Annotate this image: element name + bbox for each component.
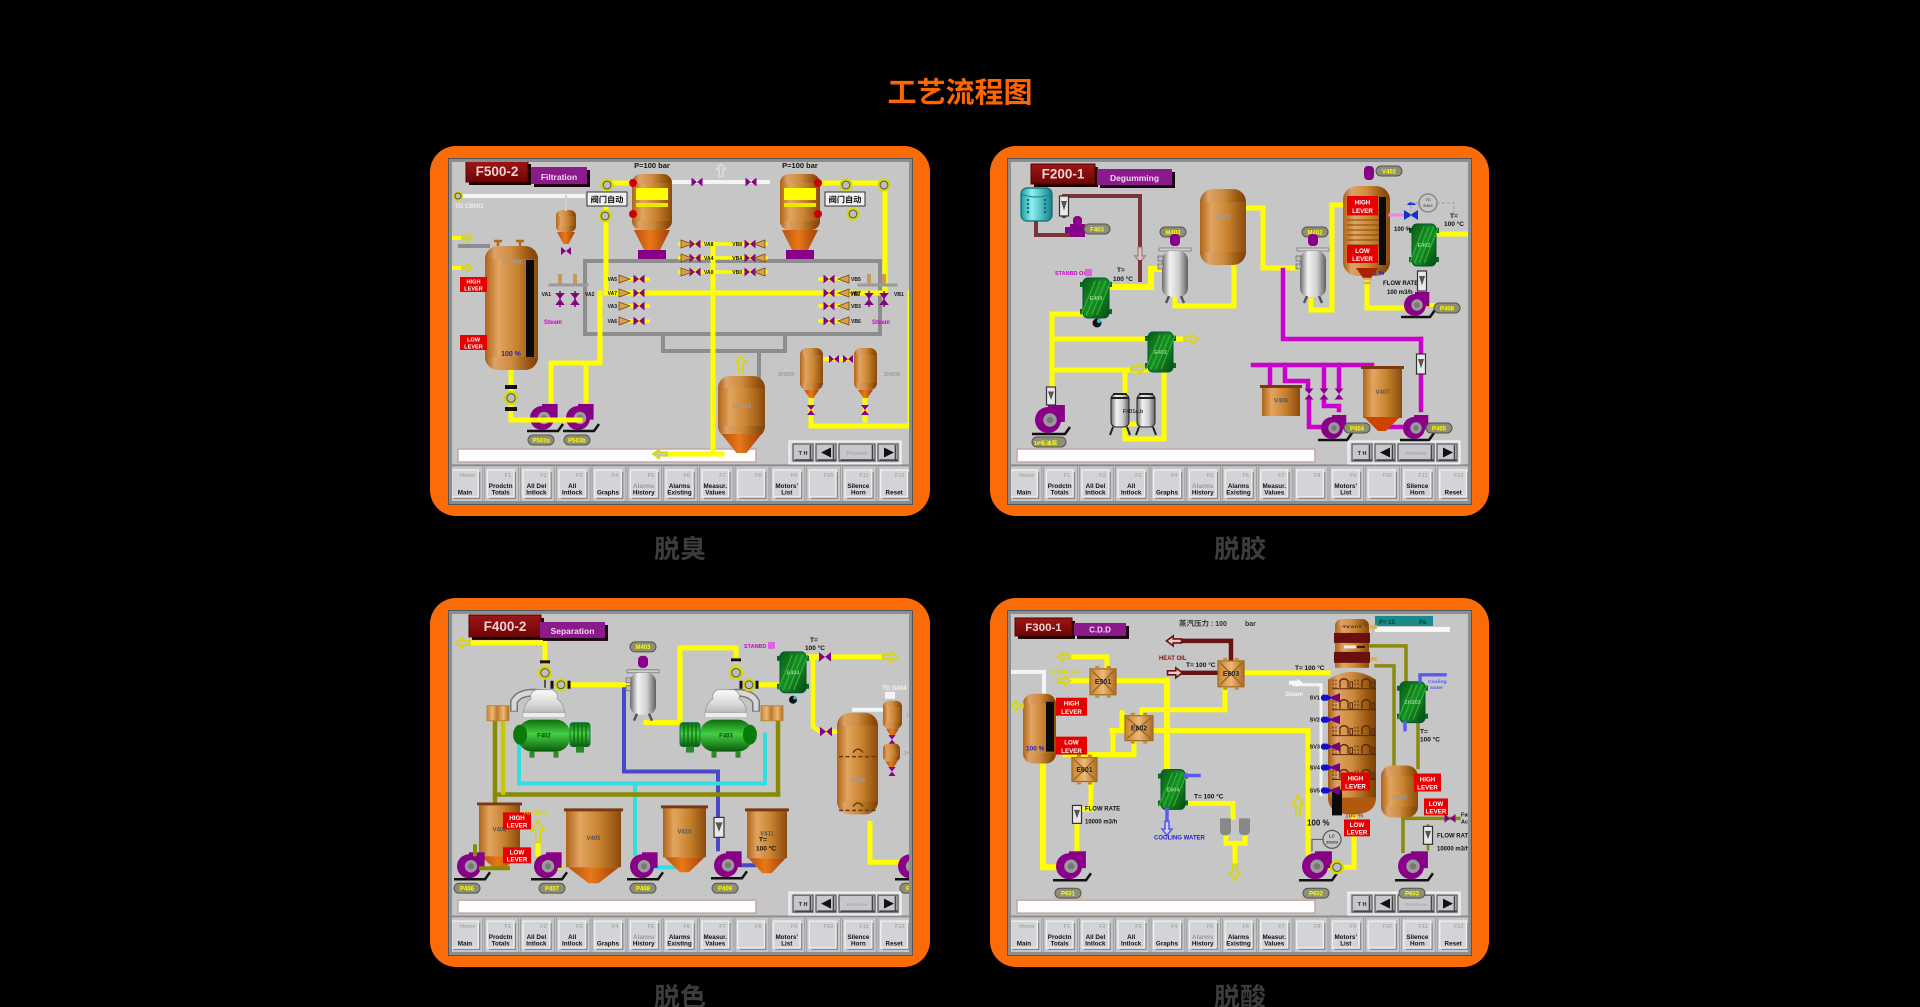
svg-text:F3: F3: [1135, 473, 1141, 479]
svg-text:1#: 1#: [1034, 441, 1040, 447]
svg-text:Pa: Pa: [1419, 620, 1427, 626]
svg-text:HIGH: HIGH: [1355, 199, 1371, 206]
svg-text:P=100 bar: P=100 bar: [634, 161, 670, 170]
svg-text:F10: F10: [823, 473, 832, 479]
svg-text:HIGH: HIGH: [467, 280, 481, 286]
svg-text:F200-1: F200-1: [1042, 166, 1085, 181]
svg-text:Intlock: Intlock: [526, 490, 547, 497]
svg-text:F6: F6: [1242, 473, 1248, 479]
svg-text:F12: F12: [895, 924, 904, 930]
svg-text:VA1: VA1: [542, 292, 552, 298]
svg-text:F3: F3: [576, 473, 582, 479]
svg-text:F12: F12: [1454, 924, 1463, 930]
svg-text:VB6: VB6: [851, 319, 861, 325]
svg-text:P409: P409: [718, 886, 733, 892]
svg-text:T=: T=: [810, 637, 818, 644]
svg-text:V405: V405: [586, 836, 601, 842]
svg-text:Home: Home: [1019, 473, 1034, 479]
svg-text:100 %: 100 %: [1394, 227, 1412, 233]
svg-text:E601: E601: [1076, 767, 1092, 774]
svg-text:F2: F2: [540, 924, 546, 930]
svg-text:Filtration: Filtration: [541, 172, 577, 182]
svg-text:ZH203: ZH203: [1404, 700, 1420, 706]
svg-text:LEVER: LEVER: [507, 857, 528, 864]
svg-text:VA5: VA5: [608, 277, 618, 283]
svg-text:E400: E400: [1090, 296, 1103, 302]
svg-text:Main: Main: [458, 941, 472, 948]
svg-text:ZH210: ZH210: [732, 403, 752, 410]
svg-text:LOW: LOW: [510, 849, 525, 856]
svg-text:VB3: VB3: [851, 304, 861, 310]
svg-text:Previous: Previous: [1405, 902, 1426, 908]
svg-text:History: History: [1192, 941, 1214, 948]
svg-text:E603: E603: [1223, 671, 1239, 678]
svg-text:F2: F2: [540, 473, 546, 479]
svg-text:TO CB001: TO CB001: [455, 204, 484, 210]
svg-text:F3: F3: [576, 924, 582, 930]
svg-text:T H: T H: [1358, 451, 1367, 457]
svg-text:F5: F5: [1207, 924, 1213, 930]
svg-text:P404: P404: [1350, 426, 1365, 432]
svg-text:LEVER: LEVER: [1352, 208, 1373, 215]
svg-text:VA7: VA7: [608, 291, 618, 297]
svg-text:E404: E404: [787, 670, 801, 676]
svg-text:T H: T H: [1358, 902, 1367, 908]
svg-text:VA8: VA8: [704, 242, 714, 248]
svg-text:LEVER: LEVER: [464, 345, 483, 351]
svg-text:F4: F4: [1171, 473, 1178, 479]
svg-text:V403: V403: [850, 778, 866, 785]
svg-text:F300-1: F300-1: [1025, 622, 1062, 634]
svg-text:F403: F403: [719, 734, 733, 740]
svg-text:Previous: Previous: [846, 451, 867, 457]
svg-text:F11: F11: [860, 924, 869, 930]
svg-text:E604: E604: [1167, 787, 1181, 793]
svg-text:C.D.D: C.D.D: [1089, 626, 1111, 635]
svg-text:F9: F9: [791, 473, 797, 479]
svg-text:F3: F3: [1135, 924, 1141, 930]
svg-text:Totals: Totals: [492, 941, 511, 948]
svg-text:F500-2: F500-2: [476, 164, 519, 179]
svg-text:F2: F2: [1099, 473, 1105, 479]
svg-text:T H: T H: [799, 451, 808, 457]
svg-text:Graphs: Graphs: [597, 490, 620, 497]
svg-text:P408: P408: [636, 886, 651, 892]
svg-text:Intlock: Intlock: [1085, 941, 1106, 948]
svg-text:COOLING WATER: COOLING WATER: [1154, 835, 1206, 841]
svg-text:HIGH: HIGH: [1420, 776, 1436, 783]
svg-text:F6: F6: [683, 924, 689, 930]
svg-text:Existing: Existing: [1226, 941, 1251, 948]
svg-text:T=: T=: [759, 836, 767, 843]
svg-text:Graphs: Graphs: [597, 941, 620, 948]
svg-text:Values: Values: [705, 941, 725, 948]
svg-text:E501: E501: [1095, 679, 1111, 686]
svg-text:F402: F402: [537, 734, 551, 740]
svg-text:E402: E402: [1423, 203, 1433, 208]
svg-text:LEVER: LEVER: [507, 823, 528, 830]
svg-text:VB4: VB4: [732, 256, 742, 262]
svg-text:Home: Home: [460, 924, 475, 930]
svg-text:SV2: SV2: [1310, 718, 1320, 724]
svg-text:LOW: LOW: [1429, 801, 1444, 808]
svg-text:V406: V406: [1274, 399, 1289, 405]
svg-text:F400-2: F400-2: [484, 619, 527, 634]
svg-text:100 %: 100 %: [501, 351, 522, 358]
svg-text:100 °C: 100 °C: [1444, 220, 1464, 228]
svg-text:F9: F9: [1350, 924, 1356, 930]
svg-text:E602: E602: [1131, 726, 1147, 733]
svg-text:P408: P408: [1440, 306, 1455, 312]
svg-text:ZH209: ZH209: [884, 372, 901, 378]
svg-text:Horn: Horn: [1410, 490, 1425, 497]
svg-text:Main: Main: [1017, 941, 1031, 948]
svg-text:SV5: SV5: [1310, 788, 1320, 794]
svg-text:F8: F8: [1314, 473, 1320, 479]
svg-text:F9: F9: [1350, 473, 1356, 479]
svg-text:ZH204: ZH204: [502, 259, 522, 266]
svg-text:F8: F8: [755, 473, 761, 479]
svg-text:F5: F5: [648, 473, 654, 479]
svg-text:E402: E402: [1154, 350, 1167, 356]
svg-text:LOW: LOW: [1064, 740, 1079, 747]
svg-text:VA0: VA0: [704, 270, 714, 276]
svg-text:F5: F5: [1207, 473, 1213, 479]
svg-text:LOW: LOW: [467, 338, 481, 344]
svg-text:: 100: : 100: [1211, 621, 1227, 628]
svg-text:VB0: VB0: [732, 270, 742, 276]
svg-text:100 °C: 100 °C: [1420, 736, 1440, 744]
svg-text:T= 100 °C: T= 100 °C: [1186, 661, 1216, 669]
svg-text:Intlock: Intlock: [1121, 941, 1142, 948]
svg-text:F11: F11: [1419, 473, 1428, 479]
svg-text:Reset: Reset: [886, 941, 904, 948]
svg-text:Main: Main: [1017, 490, 1031, 497]
svg-text:Horn: Horn: [1410, 941, 1425, 948]
svg-text:Totals: Totals: [1051, 490, 1070, 497]
svg-text:Totals: Totals: [1051, 941, 1070, 948]
svg-text:Intlock: Intlock: [1121, 490, 1142, 497]
svg-text:F8: F8: [755, 924, 761, 930]
svg-text:VB8: VB8: [732, 242, 742, 248]
svg-text:History: History: [633, 941, 655, 948]
svg-text:100 %: 100 %: [1307, 818, 1330, 827]
svg-text:100 °C: 100 °C: [1113, 275, 1133, 283]
svg-text:LEVER: LEVER: [1347, 830, 1368, 837]
svg-text:LEVER: LEVER: [1061, 748, 1082, 755]
svg-text:CRUDE OIL: CRUDE OIL: [1050, 669, 1081, 675]
svg-text:V407: V407: [1375, 390, 1390, 396]
svg-text:F10: F10: [1382, 473, 1391, 479]
svg-text:F8: F8: [1314, 924, 1320, 930]
svg-text:E402: E402: [1418, 243, 1431, 249]
svg-text:FLOW RATE: FLOW RATE: [1085, 806, 1120, 812]
svg-text:Graphs: Graphs: [1156, 490, 1179, 497]
svg-text:ZH209: ZH209: [778, 372, 795, 378]
svg-text:F11: F11: [1419, 924, 1428, 930]
svg-text:LEVER: LEVER: [464, 287, 483, 293]
svg-text:F1: F1: [1064, 924, 1070, 930]
svg-text:F4: F4: [1171, 924, 1178, 930]
svg-text:Values: Values: [1264, 941, 1284, 948]
svg-text:F2: F2: [1099, 924, 1105, 930]
svg-text:bar: bar: [1245, 621, 1256, 628]
svg-text:P602: P602: [1309, 891, 1324, 897]
svg-text:Intlock: Intlock: [526, 941, 547, 948]
svg-text:F4: F4: [612, 473, 619, 479]
svg-text:LEVER: LEVER: [1345, 784, 1366, 791]
svg-text:F1: F1: [1064, 473, 1070, 479]
svg-text:F6: F6: [1242, 924, 1248, 930]
svg-text:P601: P601: [1061, 891, 1076, 897]
svg-text:List: List: [781, 490, 793, 497]
svg-text:Previous: Previous: [846, 902, 867, 908]
svg-text:Values: Values: [705, 490, 725, 497]
svg-text:LEVER: LEVER: [1426, 809, 1447, 816]
svg-text:Steam: Steam: [1285, 692, 1303, 698]
svg-text:TO ZH103: TO ZH103: [523, 810, 549, 816]
svg-text:VA3: VA3: [608, 304, 618, 310]
svg-text:LOW: LOW: [1350, 822, 1365, 829]
svg-text:STANBD Oil: STANBD Oil: [1055, 271, 1087, 277]
svg-text:TC: TC: [1425, 197, 1430, 202]
svg-text:HIGH: HIGH: [1064, 701, 1080, 708]
svg-text:VB5: VB5: [851, 277, 861, 283]
svg-text:VA6: VA6: [608, 319, 618, 325]
svg-text:P407: P407: [545, 886, 560, 892]
svg-text:Separation: Separation: [551, 626, 595, 636]
svg-text:F7: F7: [1278, 924, 1284, 930]
svg-text:FLOW RATE: FLOW RATE: [1437, 833, 1472, 839]
svg-text:LEVER: LEVER: [1352, 256, 1373, 263]
svg-text:F403: F403: [1090, 227, 1104, 233]
svg-text:F7: F7: [719, 924, 725, 930]
svg-text:Main: Main: [458, 490, 472, 497]
svg-text:F10: F10: [823, 924, 832, 930]
svg-text:P405: P405: [1432, 426, 1447, 432]
svg-text:F1: F1: [505, 473, 511, 479]
svg-text:P= 15: P= 15: [1379, 620, 1396, 626]
svg-text:Home: Home: [1019, 924, 1034, 930]
svg-text:HEAT OIL: HEAT OIL: [1159, 656, 1187, 662]
svg-text:F1: F1: [505, 924, 511, 930]
svg-text:Reset: Reset: [1445, 490, 1463, 497]
svg-text:T=: T=: [1420, 729, 1428, 736]
svg-text:V402: V402: [1382, 169, 1397, 175]
svg-text:Steam: Steam: [872, 320, 890, 326]
svg-text:VA2: VA2: [585, 292, 595, 298]
svg-text:F12: F12: [1454, 473, 1463, 479]
svg-text:FLOW RATE: FLOW RATE: [1383, 281, 1418, 287]
svg-text:P503b: P503b: [568, 438, 586, 444]
svg-text:Previous: Previous: [1405, 451, 1426, 457]
svg-text:List: List: [781, 941, 793, 948]
svg-text:F11: F11: [860, 473, 869, 479]
svg-text:History: History: [633, 490, 655, 497]
svg-text:VB1: VB1: [894, 292, 904, 298]
svg-text:P=100 bar: P=100 bar: [782, 161, 818, 170]
svg-text:Degumming: Degumming: [1110, 173, 1159, 183]
svg-text:V602: V602: [1392, 794, 1408, 801]
svg-text:LEVER: LEVER: [1061, 709, 1082, 716]
svg-text:Horn: Horn: [851, 490, 866, 497]
svg-text:VA4: VA4: [704, 256, 714, 262]
svg-text:VB2: VB2: [850, 292, 860, 298]
svg-text:LEVER: LEVER: [1417, 785, 1438, 792]
svg-text:V401: V401: [1215, 214, 1231, 221]
svg-text:F6: F6: [683, 473, 689, 479]
svg-text:Graphs: Graphs: [1156, 941, 1179, 948]
svg-text:100 %: 100 %: [1026, 746, 1045, 753]
svg-text:10000 m3/h: 10000 m3/h: [1437, 846, 1470, 852]
svg-text:List: List: [1340, 490, 1352, 497]
svg-text:100 m3/h: 100 m3/h: [1387, 290, 1413, 296]
svg-text:Totals: Totals: [492, 490, 511, 497]
svg-text:F12: F12: [895, 473, 904, 479]
svg-text:ZH203: ZH203: [1326, 839, 1339, 844]
svg-text:Existing: Existing: [667, 490, 692, 497]
svg-text:Intlock: Intlock: [1085, 490, 1106, 497]
svg-text:Horn: Horn: [851, 941, 866, 948]
svg-text:10000 m3/h: 10000 m3/h: [1085, 819, 1118, 825]
svg-text:F4: F4: [612, 924, 619, 930]
svg-text:F9: F9: [791, 924, 797, 930]
svg-text:F401a,b: F401a,b: [1123, 409, 1144, 415]
svg-text:T H: T H: [799, 902, 808, 908]
svg-text:water: water: [1429, 685, 1443, 691]
svg-text:P603: P603: [1405, 891, 1420, 897]
svg-text:Reset: Reset: [886, 490, 904, 497]
svg-text:F10: F10: [1382, 924, 1391, 930]
svg-text:Intlock: Intlock: [562, 490, 583, 497]
svg-text:Home: Home: [460, 473, 475, 479]
svg-text:F7: F7: [719, 473, 725, 479]
svg-text:List: List: [1340, 941, 1352, 948]
svg-text:T=: T=: [1117, 267, 1125, 274]
svg-text:V410: V410: [677, 829, 692, 835]
svg-text:SV3: SV3: [1310, 745, 1320, 751]
svg-text:Steam: Steam: [544, 320, 562, 326]
svg-text:TO G004: TO G004: [882, 686, 907, 692]
svg-text:T= 100 °C: T= 100 °C: [1194, 792, 1224, 800]
svg-text:F5: F5: [648, 924, 654, 930]
svg-text:T= 100 °C: T= 100 °C: [1295, 664, 1325, 672]
svg-text:Existing: Existing: [667, 941, 692, 948]
svg-text:100 %: 100 %: [1345, 812, 1364, 819]
svg-text:SV1: SV1: [1310, 696, 1320, 702]
svg-text:History: History: [1192, 490, 1214, 497]
svg-text:M403: M403: [635, 645, 651, 651]
svg-text:LC: LC: [1329, 833, 1336, 838]
svg-text:100 °C: 100 °C: [756, 844, 776, 852]
svg-text:Existing: Existing: [1226, 490, 1251, 497]
svg-text:Intlock: Intlock: [562, 941, 583, 948]
svg-text:P503a: P503a: [532, 438, 550, 444]
svg-text:SV4: SV4: [1310, 766, 1321, 772]
svg-text:LOW: LOW: [1355, 248, 1370, 255]
svg-text:100 °C: 100 °C: [805, 644, 825, 652]
svg-text:F7: F7: [1278, 473, 1284, 479]
svg-text:Reset: Reset: [1445, 941, 1463, 948]
svg-text:Values: Values: [1264, 490, 1284, 497]
svg-text:P406: P406: [460, 886, 475, 892]
svg-text:HIGH: HIGH: [1348, 775, 1364, 782]
